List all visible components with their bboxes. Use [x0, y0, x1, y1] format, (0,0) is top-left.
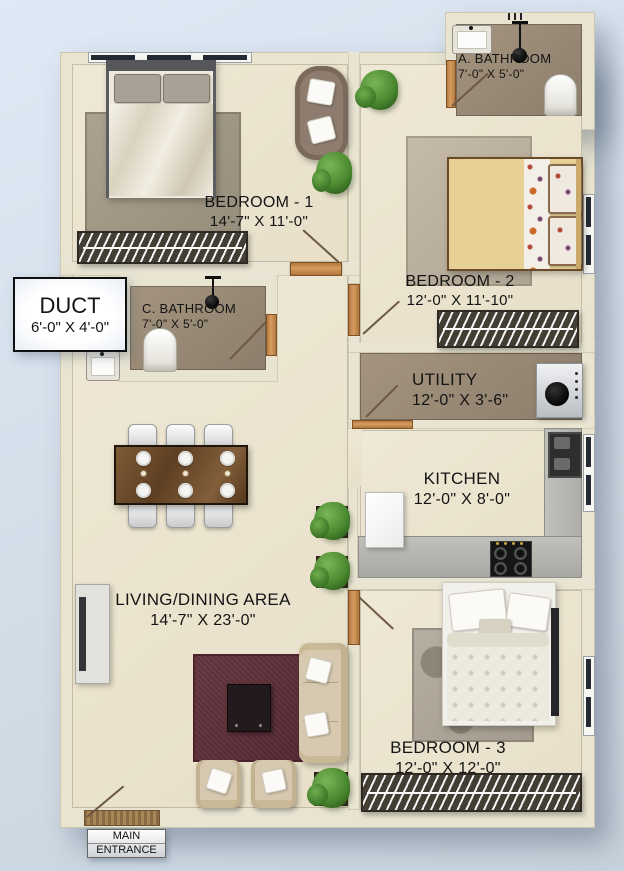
- bed-blanket: [109, 104, 213, 196]
- washer-door: [545, 382, 569, 406]
- bowl: [224, 470, 231, 477]
- chair-pillow: [306, 78, 336, 106]
- sofa: [299, 643, 348, 763]
- plant-icon: [316, 152, 352, 194]
- dining-table: [114, 445, 248, 505]
- main-entrance-badge: MAIN ENTRANCE: [87, 829, 166, 858]
- bowl: [182, 470, 189, 477]
- room-label-bedroom-1: BEDROOM - 1 14'-7" X 11'-0": [204, 193, 313, 231]
- refrigerator: [365, 492, 404, 548]
- wall-bed1-bottom-right: [342, 262, 360, 276]
- room-label-utility: UTILITY 12'-0" X 3'-6": [412, 370, 508, 410]
- bedroom3-bed: [442, 582, 556, 726]
- burner: [494, 547, 507, 560]
- tv-screen: [79, 597, 86, 671]
- plant-icon: [360, 70, 398, 110]
- plant-icon: [312, 768, 350, 808]
- room-label-a-bathroom: A. BATHROOM 7'-0" X 5'-0": [458, 51, 551, 81]
- washer-knob: [575, 372, 578, 375]
- plate: [220, 483, 235, 498]
- plate: [178, 483, 193, 498]
- burner: [514, 547, 527, 560]
- sofa-pillow: [305, 657, 333, 685]
- chair-pillow: [261, 768, 287, 794]
- plant-icon: [314, 552, 350, 590]
- bedroom1-wardrobe: [77, 231, 248, 264]
- plate: [136, 483, 151, 498]
- bed-pillow: [114, 74, 161, 103]
- plate: [178, 451, 193, 466]
- room-label-bedroom-2: BEDROOM - 2 12'-0" X 11'-10": [405, 272, 514, 310]
- bed-pillow: [163, 74, 210, 103]
- table-knob: [235, 724, 238, 727]
- stove: [490, 541, 532, 577]
- burner: [494, 562, 507, 575]
- duct-label-box: DUCT 6'-0" X 4'-0": [13, 277, 127, 352]
- bedroom1-door: [290, 262, 342, 276]
- bed-headboard: [576, 159, 581, 269]
- burner: [514, 562, 527, 575]
- duct-name: DUCT: [39, 293, 100, 319]
- entrance-line2: ENTRANCE: [88, 843, 165, 857]
- utility-door: [352, 420, 413, 429]
- bed-runner: [524, 159, 550, 269]
- main-entrance-door: [84, 810, 160, 826]
- armchair: [251, 760, 296, 808]
- chair-pillow: [205, 767, 233, 795]
- bedroom1-bed: [106, 60, 216, 198]
- sink-bowl: [554, 437, 570, 449]
- plate: [220, 451, 235, 466]
- bedroom3-wardrobe: [361, 773, 582, 812]
- bedroom3-side-console: [551, 608, 559, 716]
- sofa-pillow: [303, 711, 330, 738]
- c-bathroom-door: [266, 314, 277, 356]
- floorplan-canvas: DUCT 6'-0" X 4'-0" A. BATHROOM 7'-0" X 5…: [0, 0, 624, 871]
- room-label-kitchen: KITCHEN 12'-0" X 8'-0": [414, 469, 510, 509]
- kitchen-window: [583, 434, 595, 512]
- bed-headboard: [106, 60, 216, 71]
- bedroom3-window: [583, 656, 595, 736]
- bedroom2-door: [348, 284, 360, 336]
- washing-machine: [536, 363, 583, 418]
- duvet-fold: [447, 633, 549, 647]
- bedroom2-wardrobe: [437, 310, 579, 348]
- bedroom2-bed: [447, 157, 583, 271]
- faucet-icon: [100, 352, 104, 356]
- room-label-bedroom-3: BEDROOM - 3 12'-0" X 12'-0": [390, 738, 506, 778]
- chair-pillow: [306, 115, 336, 144]
- kitchen-opening-floor: [348, 429, 362, 486]
- bed-pillow: [505, 592, 551, 632]
- kitchen-sink: [548, 432, 582, 478]
- bowl: [140, 470, 147, 477]
- c-bathroom-toilet: [143, 328, 177, 372]
- plate: [136, 451, 151, 466]
- faucet-icon: [469, 26, 473, 30]
- room-label-c-bathroom: C. BATHROOM 7'-0" X 5'-0": [142, 301, 236, 331]
- bedroom1-armchair: [295, 66, 348, 160]
- plant-icon: [314, 502, 350, 540]
- sink-bowl: [554, 458, 570, 470]
- shower-stem: [519, 24, 521, 50]
- coffee-table: [227, 684, 271, 732]
- vent-icon: [508, 13, 526, 20]
- room-label-living: LIVING/DINING AREA 14'-7" X 23'-0": [115, 590, 290, 630]
- stove-knobs: [496, 542, 499, 545]
- bedroom2-window: [583, 194, 595, 274]
- entrance-line1: MAIN: [88, 830, 165, 843]
- duct-dims: 6'-0" X 4'-0": [31, 319, 109, 336]
- tv-unit: [75, 584, 110, 684]
- armchair: [196, 760, 241, 808]
